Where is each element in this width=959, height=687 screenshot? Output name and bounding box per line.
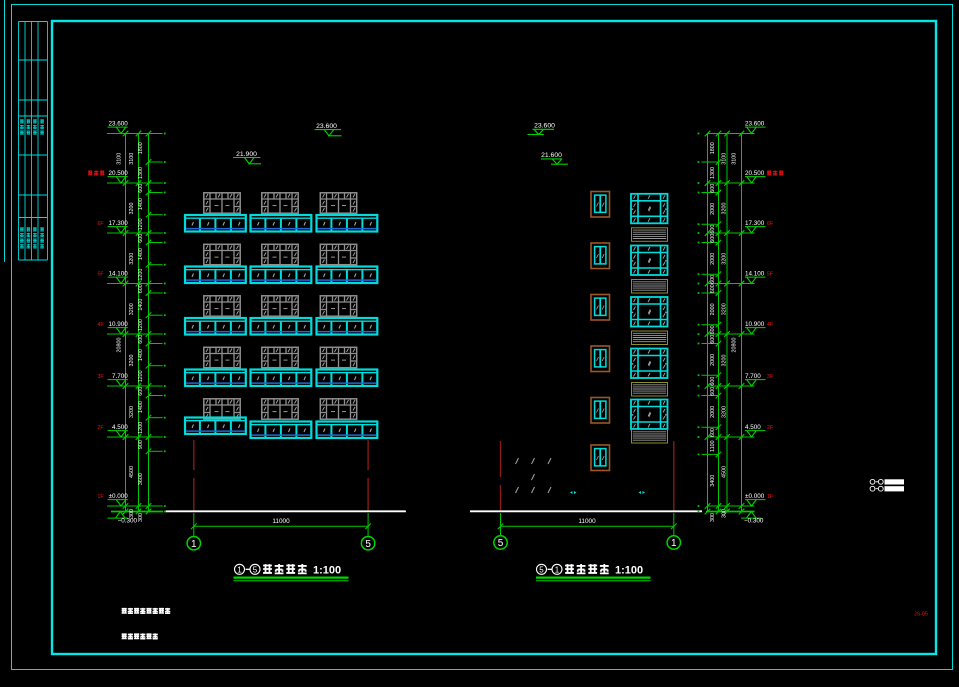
- svg-text:600: 600: [710, 377, 716, 386]
- svg-text:1F: 1F: [767, 494, 773, 500]
- svg-text:3200: 3200: [129, 303, 135, 315]
- svg-text:300: 300: [138, 513, 144, 522]
- svg-text:3200: 3200: [721, 303, 727, 315]
- svg-text:4.500: 4.500: [745, 424, 761, 431]
- svg-text:17.300: 17.300: [109, 220, 129, 227]
- svg-text:20800: 20800: [117, 338, 123, 353]
- svg-text:3200: 3200: [129, 355, 135, 367]
- svg-text:600: 600: [138, 184, 144, 193]
- svg-text:3100: 3100: [731, 153, 737, 165]
- svg-text:11000: 11000: [578, 518, 596, 525]
- svg-text:6F: 6F: [97, 221, 103, 227]
- svg-text:600: 600: [138, 284, 144, 293]
- svg-text:1400: 1400: [138, 299, 144, 311]
- svg-text:23.600: 23.600: [745, 121, 765, 128]
- svg-text:2000: 2000: [710, 406, 716, 418]
- svg-text:14.100: 14.100: [745, 271, 765, 278]
- svg-text:1800: 1800: [138, 142, 144, 154]
- svg-text:1200: 1200: [138, 218, 144, 230]
- svg-text:1200: 1200: [138, 269, 144, 281]
- svg-text:2000: 2000: [710, 303, 716, 315]
- svg-text:300: 300: [721, 509, 727, 518]
- svg-text:600: 600: [710, 325, 716, 334]
- svg-text:1: 1: [671, 538, 677, 549]
- svg-text:900: 900: [138, 440, 144, 449]
- svg-text:4500: 4500: [129, 466, 135, 478]
- svg-text:20.500: 20.500: [109, 170, 129, 177]
- svg-text:±0.000: ±0.000: [109, 493, 129, 500]
- svg-text:3100: 3100: [721, 153, 727, 165]
- svg-text:600: 600: [710, 335, 716, 344]
- svg-text:3400: 3400: [710, 475, 716, 487]
- svg-text:1800: 1800: [710, 142, 716, 154]
- svg-text:4500: 4500: [721, 466, 727, 478]
- svg-text:3200: 3200: [721, 203, 727, 215]
- svg-text:2000: 2000: [710, 354, 716, 366]
- svg-text:600: 600: [138, 234, 144, 243]
- svg-text:2000: 2000: [710, 253, 716, 265]
- svg-text:4F: 4F: [767, 322, 773, 328]
- svg-text:−0.300: −0.300: [118, 518, 138, 525]
- svg-text:2F: 2F: [97, 425, 103, 431]
- svg-text:600: 600: [710, 284, 716, 293]
- svg-text:5: 5: [498, 538, 504, 549]
- svg-text:6F: 6F: [767, 221, 773, 227]
- svg-text:21.600: 21.600: [541, 152, 562, 159]
- svg-text:3100: 3100: [117, 153, 123, 165]
- svg-text:JS-05: JS-05: [914, 612, 928, 618]
- svg-text:7.700: 7.700: [745, 373, 761, 380]
- svg-text:1: 1: [191, 539, 197, 550]
- svg-text:600: 600: [710, 428, 716, 437]
- svg-text:±0.000: ±0.000: [745, 493, 765, 500]
- svg-text:2000: 2000: [710, 203, 716, 215]
- svg-text:1F: 1F: [97, 494, 103, 500]
- svg-text:5: 5: [253, 565, 258, 574]
- svg-text:3F: 3F: [97, 374, 103, 380]
- svg-text:1400: 1400: [138, 401, 144, 413]
- svg-text:11000: 11000: [272, 518, 290, 525]
- svg-text:17.300: 17.300: [745, 220, 765, 227]
- svg-text:600: 600: [710, 184, 716, 193]
- svg-text:1200: 1200: [138, 319, 144, 331]
- svg-text:21.900: 21.900: [236, 151, 257, 158]
- svg-text:1200: 1200: [138, 370, 144, 382]
- svg-text:5F: 5F: [97, 272, 103, 278]
- svg-text:1400: 1400: [138, 248, 144, 260]
- svg-text:7.700: 7.700: [112, 373, 128, 380]
- svg-text:300: 300: [710, 513, 716, 522]
- svg-text:1: 1: [237, 565, 242, 574]
- svg-text:5: 5: [365, 539, 371, 550]
- svg-text:23.600: 23.600: [109, 121, 129, 128]
- svg-text:3100: 3100: [129, 153, 135, 165]
- svg-text:20.500: 20.500: [745, 170, 765, 177]
- svg-text:14.100: 14.100: [109, 271, 129, 278]
- svg-text:1400: 1400: [138, 349, 144, 361]
- svg-text:600: 600: [138, 335, 144, 344]
- svg-text:5: 5: [539, 565, 544, 574]
- svg-text:1:100: 1:100: [313, 565, 341, 577]
- svg-text:1200: 1200: [138, 422, 144, 434]
- svg-text:3200: 3200: [129, 406, 135, 418]
- svg-text:3600: 3600: [138, 473, 144, 485]
- svg-text:3200: 3200: [129, 253, 135, 265]
- svg-text:1:100: 1:100: [615, 565, 643, 577]
- svg-text:3200: 3200: [721, 355, 727, 367]
- svg-text:600: 600: [710, 225, 716, 234]
- svg-text:600: 600: [138, 387, 144, 396]
- svg-text:−0.300: −0.300: [744, 518, 764, 525]
- svg-text:23.600: 23.600: [534, 123, 555, 130]
- svg-text:3200: 3200: [721, 253, 727, 265]
- svg-text:3200: 3200: [721, 406, 727, 418]
- svg-text:600: 600: [710, 275, 716, 284]
- svg-text:3200: 3200: [129, 203, 135, 215]
- svg-text:600: 600: [710, 234, 716, 243]
- svg-text:23.600: 23.600: [316, 123, 337, 130]
- svg-text:1100: 1100: [710, 440, 716, 452]
- svg-text:1300: 1300: [710, 167, 716, 179]
- svg-text:1400: 1400: [138, 198, 144, 210]
- svg-text:4.500: 4.500: [112, 424, 128, 431]
- svg-text:5F: 5F: [767, 272, 773, 278]
- svg-text:10.900: 10.900: [745, 321, 765, 328]
- svg-text:600: 600: [710, 387, 716, 396]
- svg-text:4F: 4F: [97, 322, 103, 328]
- svg-text:1300: 1300: [138, 167, 144, 179]
- svg-text:20800: 20800: [731, 338, 737, 353]
- svg-text:2F: 2F: [767, 425, 773, 431]
- svg-text:10.900: 10.900: [109, 321, 129, 328]
- svg-text:3F: 3F: [767, 374, 773, 380]
- svg-text:1: 1: [555, 565, 560, 574]
